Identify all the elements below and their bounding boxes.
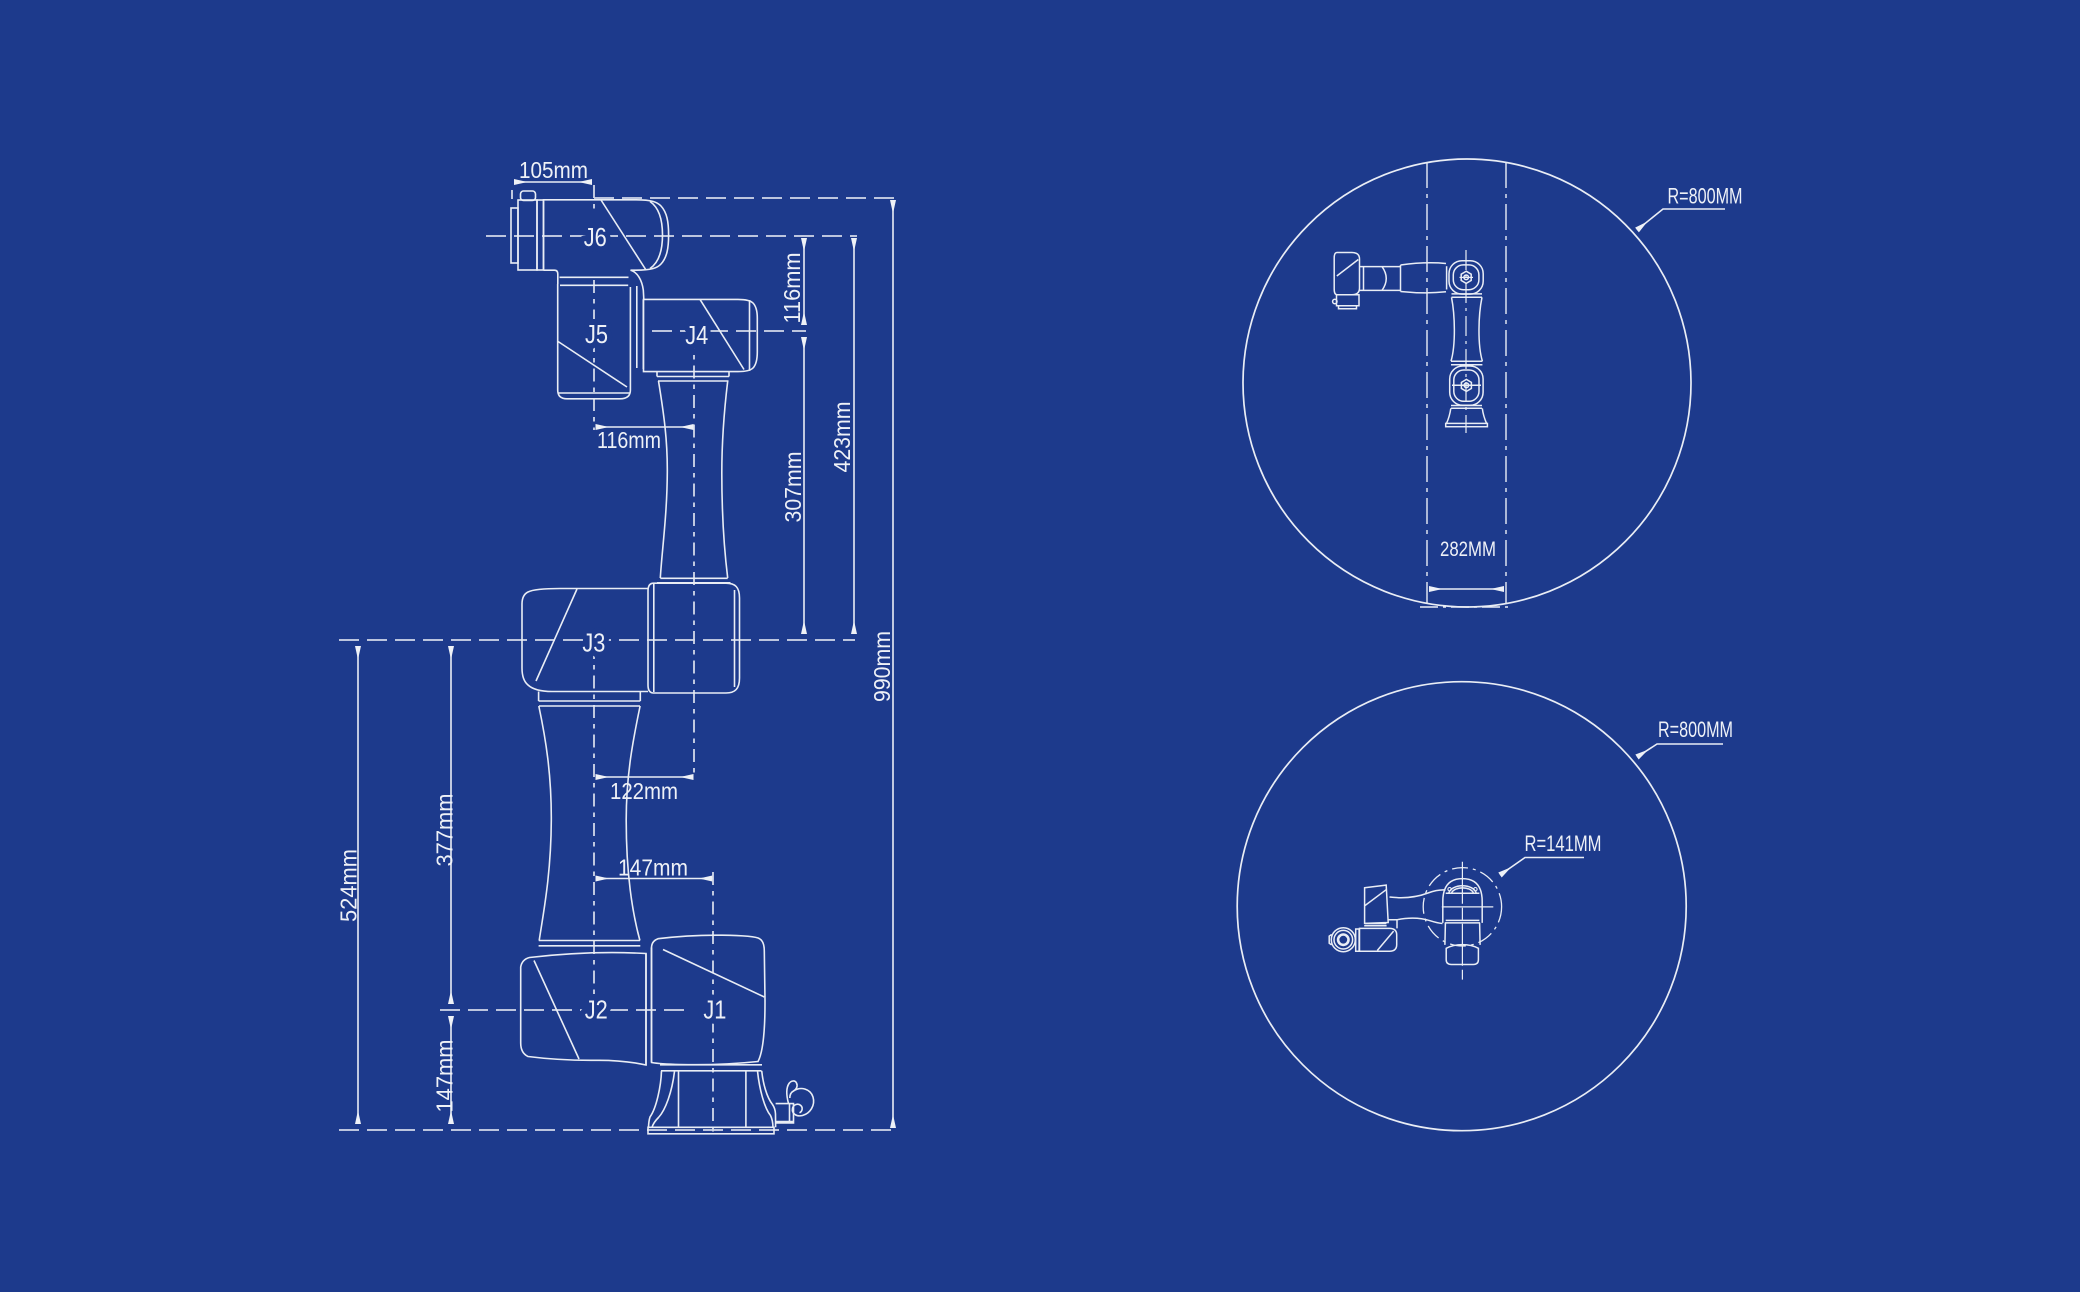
svg-text:J5: J5 — [585, 319, 608, 349]
svg-text:105mm: 105mm — [519, 157, 588, 183]
svg-text:524mm: 524mm — [336, 849, 362, 922]
svg-text:282MM: 282MM — [1440, 537, 1496, 561]
svg-text:307mm: 307mm — [780, 452, 806, 523]
svg-text:147mm: 147mm — [432, 1040, 458, 1113]
svg-text:J6: J6 — [584, 222, 607, 252]
svg-text:J1: J1 — [703, 995, 726, 1025]
svg-text:R=800MM: R=800MM — [1658, 717, 1733, 742]
svg-text:R=800MM: R=800MM — [1668, 184, 1743, 209]
svg-text:116mm: 116mm — [779, 253, 805, 324]
svg-text:990mm: 990mm — [869, 631, 895, 702]
svg-text:116mm: 116mm — [597, 427, 661, 453]
svg-text:147mm: 147mm — [618, 855, 688, 881]
svg-text:122mm: 122mm — [610, 778, 678, 804]
svg-text:J2: J2 — [585, 995, 608, 1025]
svg-text:J3: J3 — [582, 628, 605, 658]
svg-text:377mm: 377mm — [432, 794, 458, 867]
svg-text:J4: J4 — [685, 320, 708, 350]
svg-text:423mm: 423mm — [829, 402, 855, 473]
svg-text:R=141MM: R=141MM — [1525, 831, 1602, 856]
